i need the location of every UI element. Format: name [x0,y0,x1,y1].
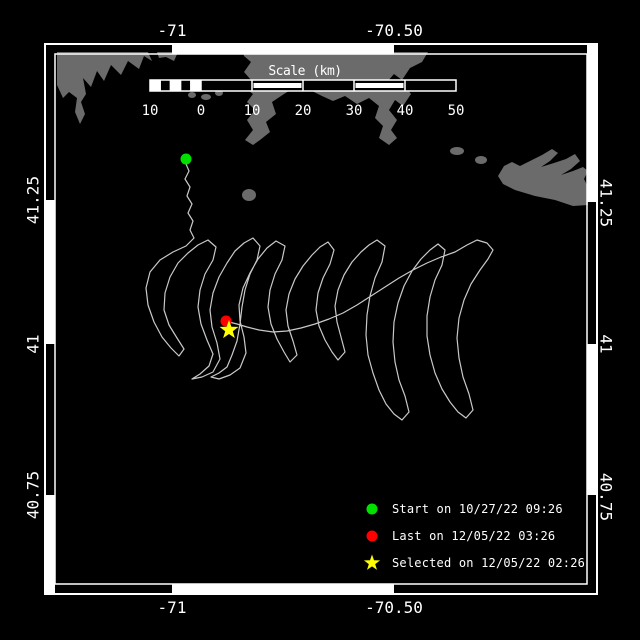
start-marker[interactable] [181,154,192,165]
scale-tick-label: 10 [142,103,159,119]
legend-last-label: Last on 12/05/22 03:26 [392,529,555,543]
axis-label-left: 41 [24,334,43,353]
axis-label-bottom: -70.50 [365,598,423,617]
axis-label-left: 40.75 [24,471,43,519]
axis-label-top: -70.50 [365,21,423,40]
axis-label-bottom: -71 [158,598,187,617]
axis-label-right: 41 [597,334,616,353]
axis-label-top: -71 [158,21,187,40]
scale-tick-label: 30 [346,103,363,119]
island-ellipse [188,92,196,98]
island-ellipse [475,156,487,164]
scale-filled-segment [254,83,302,88]
scale-tick-label: 40 [397,103,414,119]
start-circle-icon [362,499,384,519]
last-circle-icon [362,526,384,546]
legend-item-selected: Selected on 12/05/22 02:26 [362,553,585,573]
island-ellipse [242,189,256,201]
frame-segment [587,44,597,202]
legend-item-last: Last on 12/05/22 03:26 [362,526,585,546]
scale-subblock [150,80,160,91]
legend: Start on 10/27/22 09:26 Last on 12/05/22… [362,499,585,580]
scale-tick-label: 0 [197,103,205,119]
frame-segment [45,200,55,344]
scale-bar-title: Scale (km) [268,64,341,79]
frame-segment [172,584,394,594]
selected-star-icon [362,553,384,573]
map-viewer-screen: -71-70.50-71-70.5041.254140.7541.254140.… [0,0,640,640]
frame-segment [587,344,597,495]
legend-start-label: Start on 10/27/22 09:26 [392,502,563,516]
scale-tick-label: 20 [295,103,312,119]
axis-label-left: 41.25 [24,176,43,224]
scale-subblock [191,80,201,91]
island-ellipse [450,147,464,155]
scale-subblock [170,80,180,91]
scale-tick-label: 10 [244,103,261,119]
frame-segment [172,44,394,54]
legend-item-start: Start on 10/27/22 09:26 [362,499,585,519]
scale-filled-segment [356,83,404,88]
legend-selected-label: Selected on 12/05/22 02:26 [392,556,585,570]
frame-segment [45,495,55,594]
axis-label-right: 41.25 [597,179,616,227]
axis-label-right: 40.75 [597,473,616,521]
scale-tick-label: 50 [448,103,465,119]
island-ellipse [201,94,211,100]
